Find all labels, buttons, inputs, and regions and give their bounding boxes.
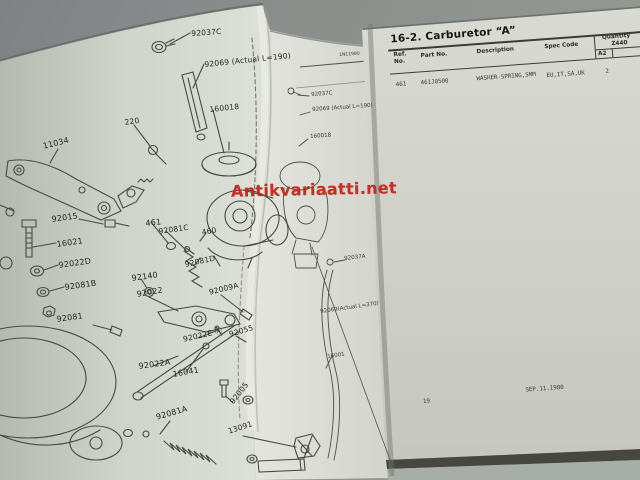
left-page-shape xyxy=(0,4,271,480)
revision-date: SEP.11.1980 xyxy=(525,385,564,394)
right-page: 16-2. Carburetor “A” Ref. No. Part No. D… xyxy=(383,15,640,457)
cell-description: WASHER-SPRING,5MM xyxy=(476,72,536,82)
header-ref-line1: Ref. xyxy=(393,51,406,58)
header-description: Description xyxy=(476,46,514,55)
cell-spec-code: EU,IT,SA,UK xyxy=(546,70,585,79)
header-part-no: Part No. xyxy=(421,51,448,59)
header-spec-a2: A2 xyxy=(598,50,607,57)
quantity-column-divider xyxy=(594,35,597,59)
header-ref-line2: No. xyxy=(394,58,405,65)
header-spec-code: Spec Code xyxy=(544,42,578,50)
cell-quantity: 2 xyxy=(605,69,609,75)
page-number: 19 xyxy=(423,399,430,405)
watermark: Antikvariaatti.net xyxy=(231,178,397,200)
header-model-z440: Z440 xyxy=(611,40,628,47)
a2-cell-divider xyxy=(612,48,614,57)
cell-part-no: 461J0500 xyxy=(420,78,448,86)
photo-of-parts-catalog: 92037C92069 (Actual L=190)16001822011034… xyxy=(0,0,640,480)
cell-ref-no: 461 xyxy=(396,81,407,88)
